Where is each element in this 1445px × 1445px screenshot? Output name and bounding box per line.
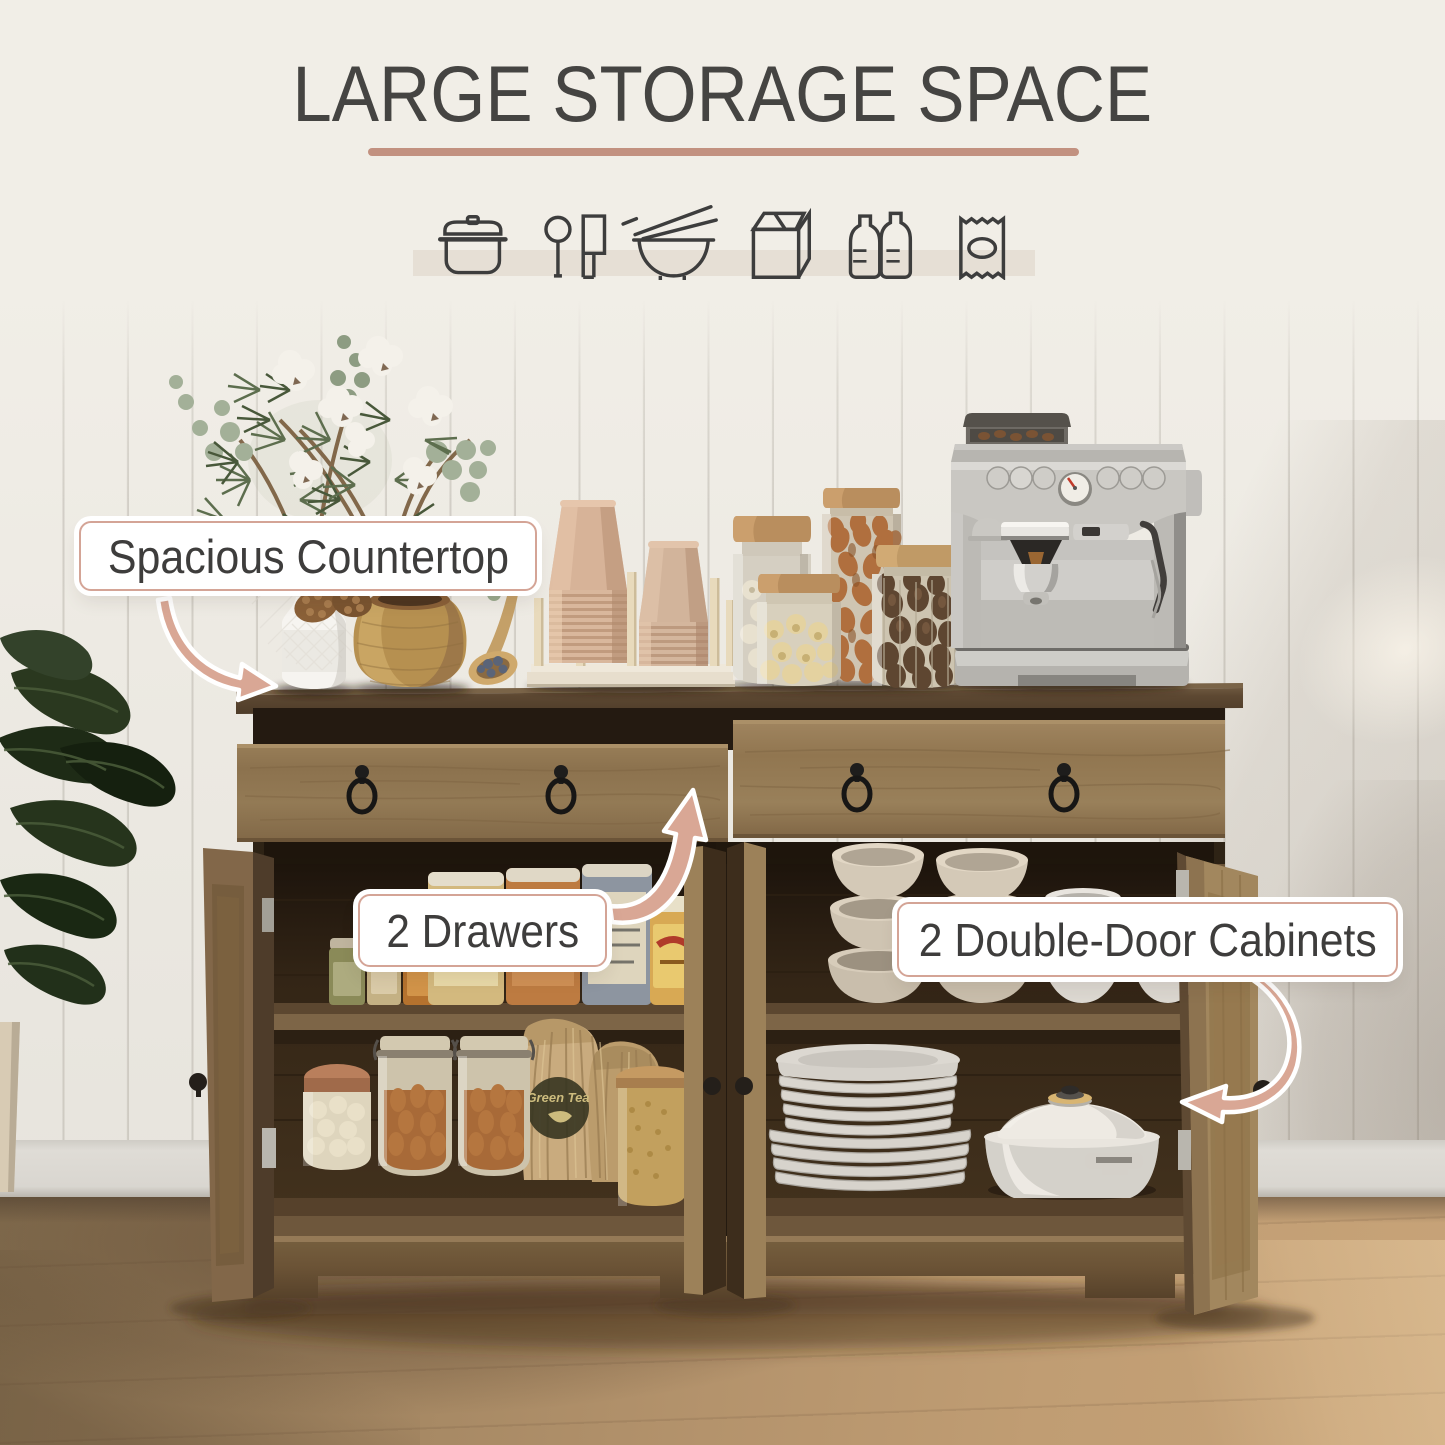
svg-text:Green Tea: Green Tea [526, 1090, 589, 1105]
